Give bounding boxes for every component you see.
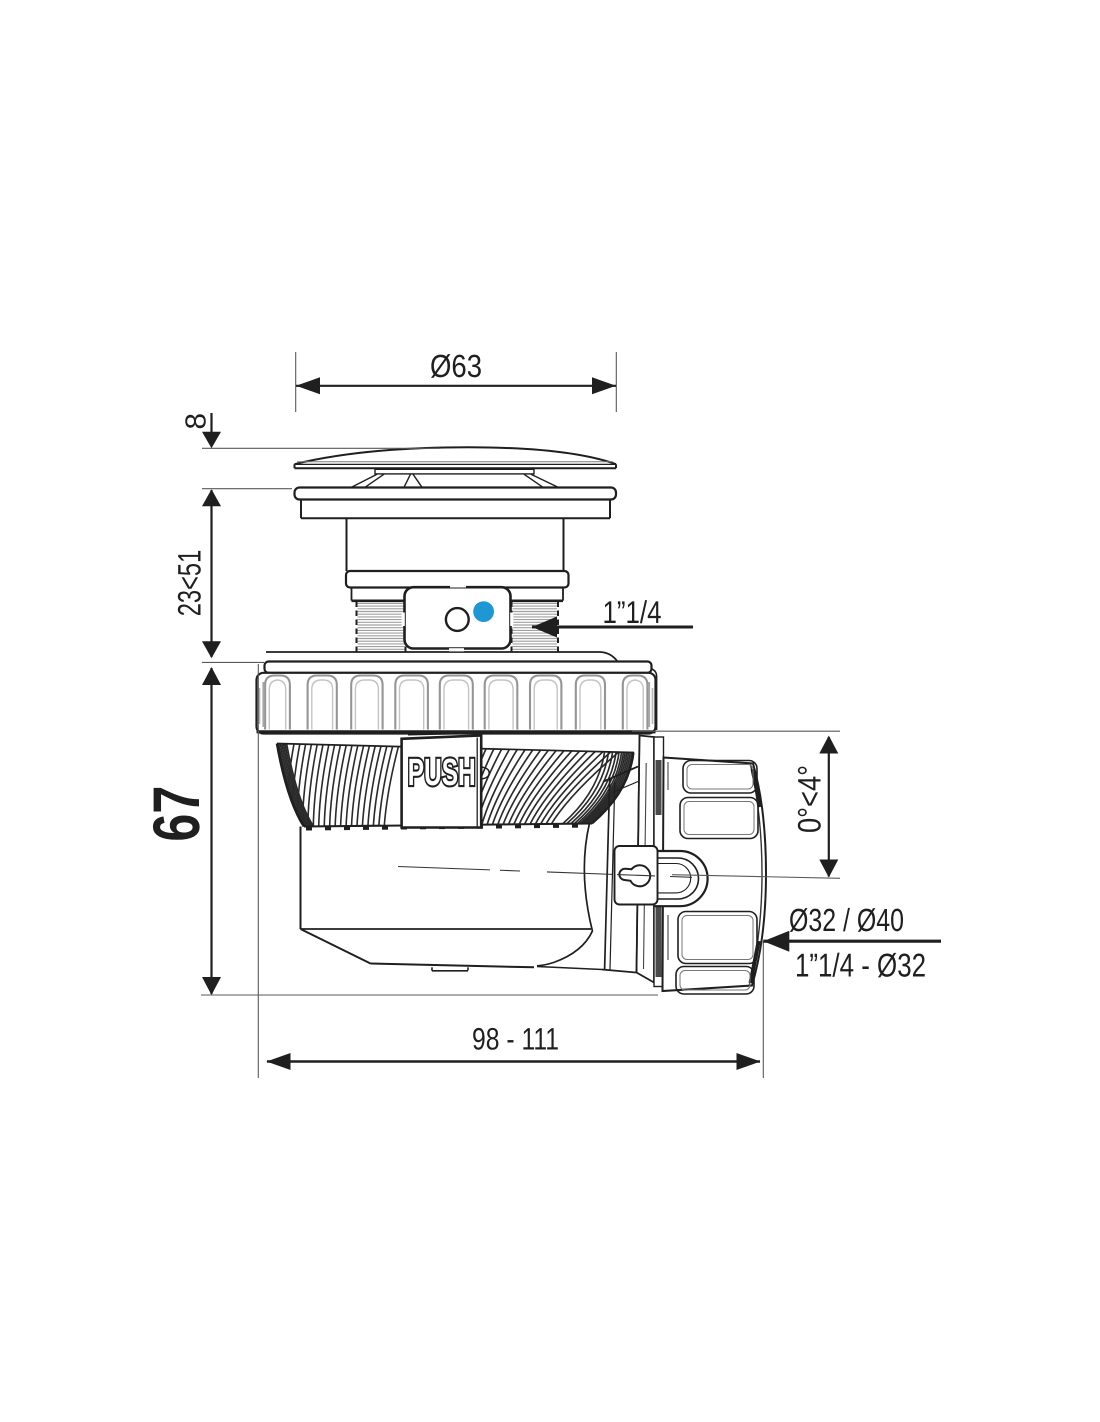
svg-text:PUSH: PUSH xyxy=(408,752,476,794)
svg-text:Ø63: Ø63 xyxy=(430,348,482,384)
svg-text:23<51: 23<51 xyxy=(172,550,208,617)
svg-text:98 - 111: 98 - 111 xyxy=(472,1022,559,1057)
svg-text:0°<4°: 0°<4° xyxy=(792,765,828,833)
svg-text:67: 67 xyxy=(139,786,213,842)
svg-text:Ø32 / Ø40: Ø32 / Ø40 xyxy=(789,902,904,938)
svg-text:1”1/4: 1”1/4 xyxy=(603,594,662,630)
svg-text:1”1/4 - Ø32: 1”1/4 - Ø32 xyxy=(795,946,926,983)
svg-text:8: 8 xyxy=(181,413,213,430)
